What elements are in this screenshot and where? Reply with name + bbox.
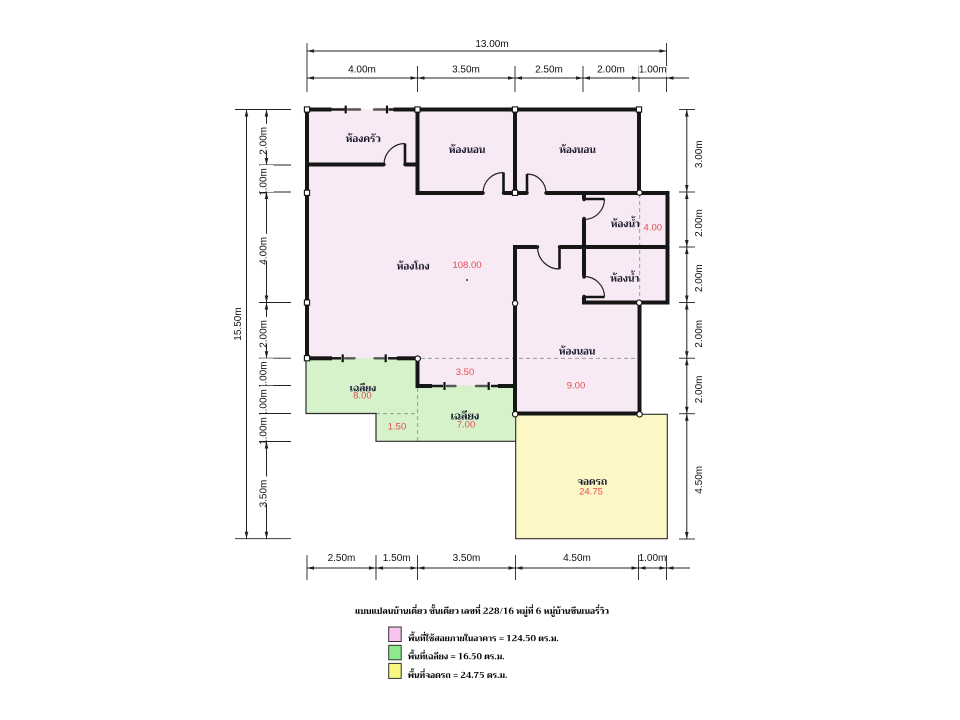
- svg-text:2.00m: 2.00m: [259, 320, 270, 348]
- svg-text:2.50m: 2.50m: [535, 65, 563, 76]
- svg-text:9.00: 9.00: [567, 381, 586, 392]
- svg-text:3.00m: 3.00m: [694, 140, 705, 168]
- svg-text:4.00m: 4.00m: [348, 65, 376, 76]
- svg-text:1.00m: 1.00m: [639, 553, 667, 564]
- svg-text:3.50: 3.50: [456, 367, 475, 378]
- svg-text:2.00m: 2.00m: [694, 264, 705, 292]
- svg-text:8.00: 8.00: [353, 390, 372, 401]
- svg-text:1.00m: 1.00m: [639, 65, 667, 76]
- svg-text:2.00m: 2.00m: [259, 127, 270, 155]
- svg-text:13.00m: 13.00m: [475, 39, 508, 50]
- svg-text:2.00m: 2.00m: [694, 376, 705, 404]
- svg-text:24.75: 24.75: [579, 487, 603, 498]
- svg-text:1.50: 1.50: [388, 422, 407, 433]
- svg-text:1.50m: 1.50m: [383, 553, 411, 564]
- svg-text:4.00m: 4.00m: [259, 237, 270, 265]
- svg-text:4.50m: 4.50m: [563, 553, 591, 564]
- svg-text:2.00m: 2.00m: [694, 209, 705, 237]
- svg-text:1.00m: 1.00m: [259, 389, 270, 417]
- svg-text:3.50m: 3.50m: [453, 553, 481, 564]
- svg-text:15.50m: 15.50m: [233, 307, 244, 340]
- svg-text:1.00m: 1.00m: [259, 361, 270, 389]
- svg-text:1.00m: 1.00m: [259, 417, 270, 445]
- svg-text:2.00m: 2.00m: [597, 65, 625, 76]
- svg-text:4.00: 4.00: [644, 223, 663, 234]
- svg-text:3.50m: 3.50m: [452, 65, 480, 76]
- svg-text:2.50m: 2.50m: [328, 553, 356, 564]
- svg-text:4.50m: 4.50m: [694, 466, 705, 494]
- svg-text:7.00: 7.00: [457, 420, 476, 431]
- svg-text:1.00m: 1.00m: [259, 168, 270, 196]
- svg-text:3.50m: 3.50m: [259, 480, 270, 508]
- svg-text:2.00m: 2.00m: [694, 320, 705, 348]
- svg-text:108.00: 108.00: [452, 260, 481, 271]
